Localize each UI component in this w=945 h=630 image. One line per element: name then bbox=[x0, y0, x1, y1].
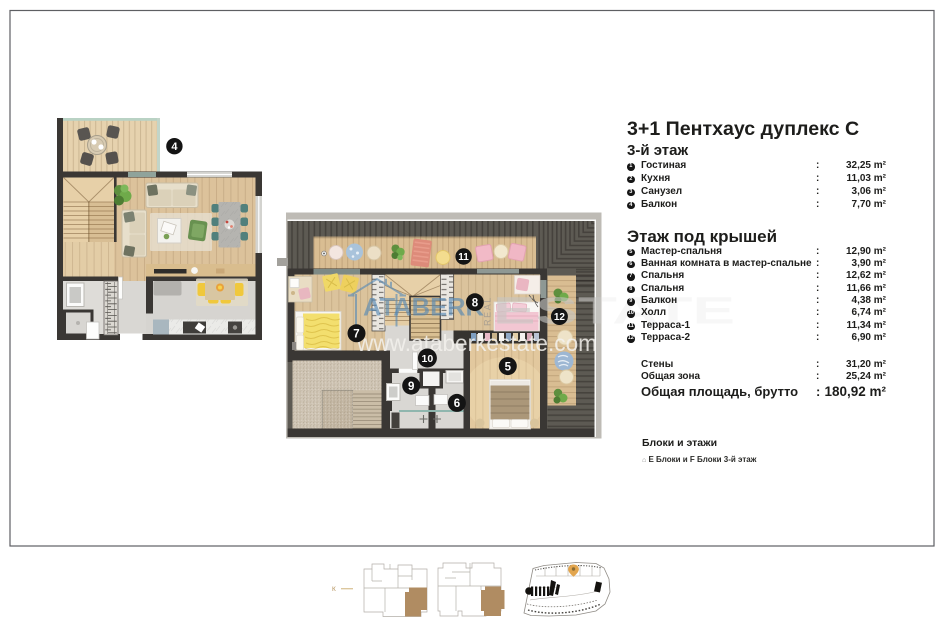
svg-text:8: 8 bbox=[472, 297, 479, 309]
svg-text:9: 9 bbox=[408, 381, 414, 393]
svg-text:12: 12 bbox=[554, 312, 566, 323]
svg-text:www.ataberkestate.com: www.ataberkestate.com bbox=[356, 330, 597, 356]
svg-text:ATABERK: ATABERK bbox=[363, 294, 484, 322]
svg-text:11: 11 bbox=[458, 252, 469, 263]
svg-text:7: 7 bbox=[353, 329, 359, 341]
svg-text:REAL: REAL bbox=[483, 296, 493, 326]
svg-text:К: К bbox=[332, 586, 336, 593]
svg-text:6: 6 bbox=[454, 398, 460, 410]
svg-text:10: 10 bbox=[422, 353, 434, 365]
svg-text:5: 5 bbox=[505, 361, 512, 373]
svg-text:4: 4 bbox=[171, 141, 178, 153]
